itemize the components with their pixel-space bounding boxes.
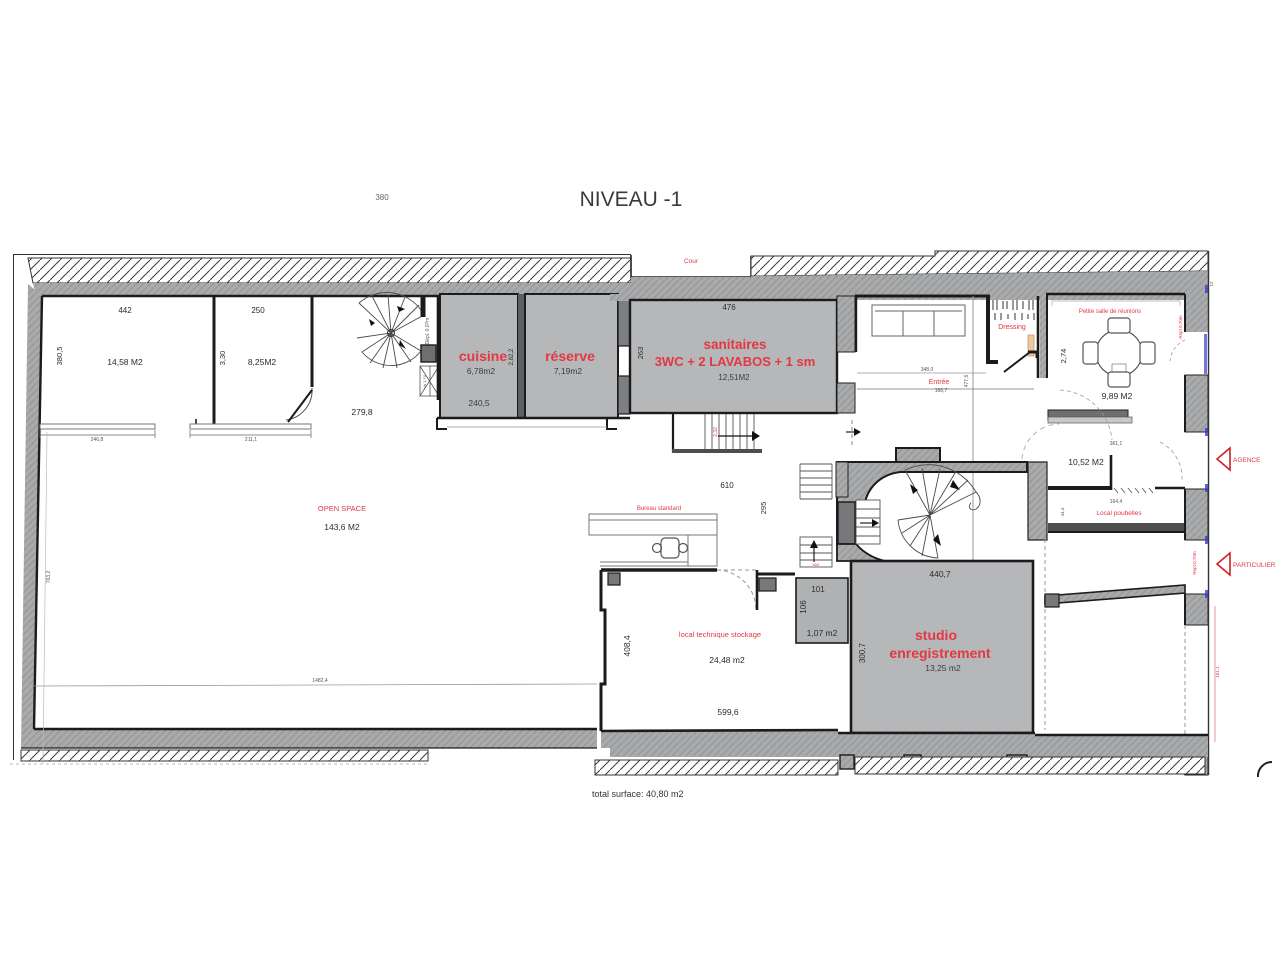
svg-text:OPEN SPACE: OPEN SPACE	[318, 504, 366, 513]
svg-text:Dépl. 0.0?m: Dépl. 0.0?m	[425, 318, 431, 345]
svg-text:2,74: 2,74	[1059, 349, 1068, 364]
svg-text:7,19m2: 7,19m2	[554, 366, 583, 376]
svg-text:300,7: 300,7	[858, 642, 867, 663]
svg-text:xxx: xxx	[813, 562, 821, 567]
svg-text:sanitaires: sanitaires	[703, 337, 766, 352]
svg-text:Va 1,74: Va 1,74	[422, 374, 427, 388]
svg-text:279,8: 279,8	[351, 407, 373, 417]
svg-text:164,4: 164,4	[1110, 499, 1123, 505]
svg-text:AGENCE: AGENCE	[1233, 457, 1261, 464]
svg-text:295: 295	[759, 502, 768, 515]
svg-text:166,7: 166,7	[935, 388, 948, 394]
svg-text:NIVEAU -1: NIVEAU -1	[580, 188, 683, 211]
svg-text:réserve: réserve	[545, 348, 595, 364]
svg-text:10,52 M2: 10,52 M2	[1068, 457, 1104, 467]
svg-text:24,48 m2: 24,48 m2	[709, 655, 745, 665]
svg-text:477,6: 477,6	[964, 375, 970, 388]
svg-text:Bureau standard: Bureau standard	[637, 506, 681, 512]
svg-text:Entrée: Entrée	[929, 379, 950, 386]
svg-text:13,25 m2: 13,25 m2	[925, 663, 961, 673]
svg-text:12,51M2: 12,51M2	[718, 373, 750, 382]
svg-text:6,78m2: 6,78m2	[467, 366, 496, 376]
svg-text:408,4: 408,4	[622, 635, 632, 657]
svg-text:enregistrement: enregistrement	[889, 645, 990, 661]
svg-text:Local poubelles: Local poubelles	[1096, 510, 1142, 517]
svg-text:143,6 M2: 143,6 M2	[324, 522, 360, 532]
svg-text:12: 12	[1209, 281, 1214, 287]
svg-text:9,89 M2: 9,89 M2	[1102, 391, 1133, 401]
svg-text:476: 476	[722, 303, 736, 312]
svg-text:610: 610	[720, 481, 734, 490]
svg-text:Rept 0.70m: Rept 0.70m	[1178, 315, 1183, 339]
svg-text:Petite salle de réunions: Petite salle de réunions	[1079, 309, 1141, 315]
svg-text:380: 380	[375, 193, 389, 202]
svg-text:1,07 m2: 1,07 m2	[807, 628, 838, 638]
svg-text:250: 250	[251, 306, 265, 315]
svg-text:8,25M2: 8,25M2	[248, 357, 277, 367]
svg-text:cuisine: cuisine	[459, 348, 507, 364]
svg-text:246,8: 246,8	[91, 437, 104, 443]
svg-text:studio: studio	[915, 627, 957, 643]
svg-text:440,7: 440,7	[929, 569, 951, 579]
svg-text:PARTICULIER: PARTICULIER	[1233, 562, 1276, 569]
svg-text:380,5: 380,5	[55, 347, 64, 366]
svg-text:763,2: 763,2	[46, 571, 52, 584]
svg-text:44,4: 44,4	[1060, 507, 1065, 516]
svg-text:1482,4: 1482,4	[312, 678, 328, 684]
svg-text:106: 106	[799, 600, 808, 614]
svg-text:240,5: 240,5	[468, 398, 490, 408]
svg-text:2,82,2: 2,82,2	[509, 348, 515, 365]
svg-text:14,58 M2: 14,58 M2	[107, 357, 143, 367]
svg-text:local technique stockage: local technique stockage	[679, 630, 761, 639]
svg-text:161,1: 161,1	[1215, 666, 1220, 678]
svg-text:263: 263	[636, 347, 645, 360]
svg-text:2,32: 2,32	[713, 427, 719, 437]
svg-text:599,6: 599,6	[717, 707, 739, 717]
svg-text:211,1: 211,1	[245, 437, 257, 443]
svg-text:Cour: Cour	[684, 258, 699, 265]
svg-text:101: 101	[811, 585, 825, 594]
svg-text:total surface: 40,80 m2: total surface: 40,80 m2	[592, 789, 684, 799]
svg-text:348,0: 348,0	[921, 367, 934, 373]
svg-text:3,30: 3,30	[218, 351, 227, 366]
svg-text:361,1: 361,1	[1110, 441, 1123, 447]
svg-text:442: 442	[118, 306, 132, 315]
svg-text:Dressing: Dressing	[998, 324, 1026, 331]
svg-text:3WC + 2 LAVABOS + 1 sm: 3WC + 2 LAVABOS + 1 sm	[655, 354, 816, 369]
svg-text:Rept.0.70m: Rept.0.70m	[1192, 551, 1197, 575]
